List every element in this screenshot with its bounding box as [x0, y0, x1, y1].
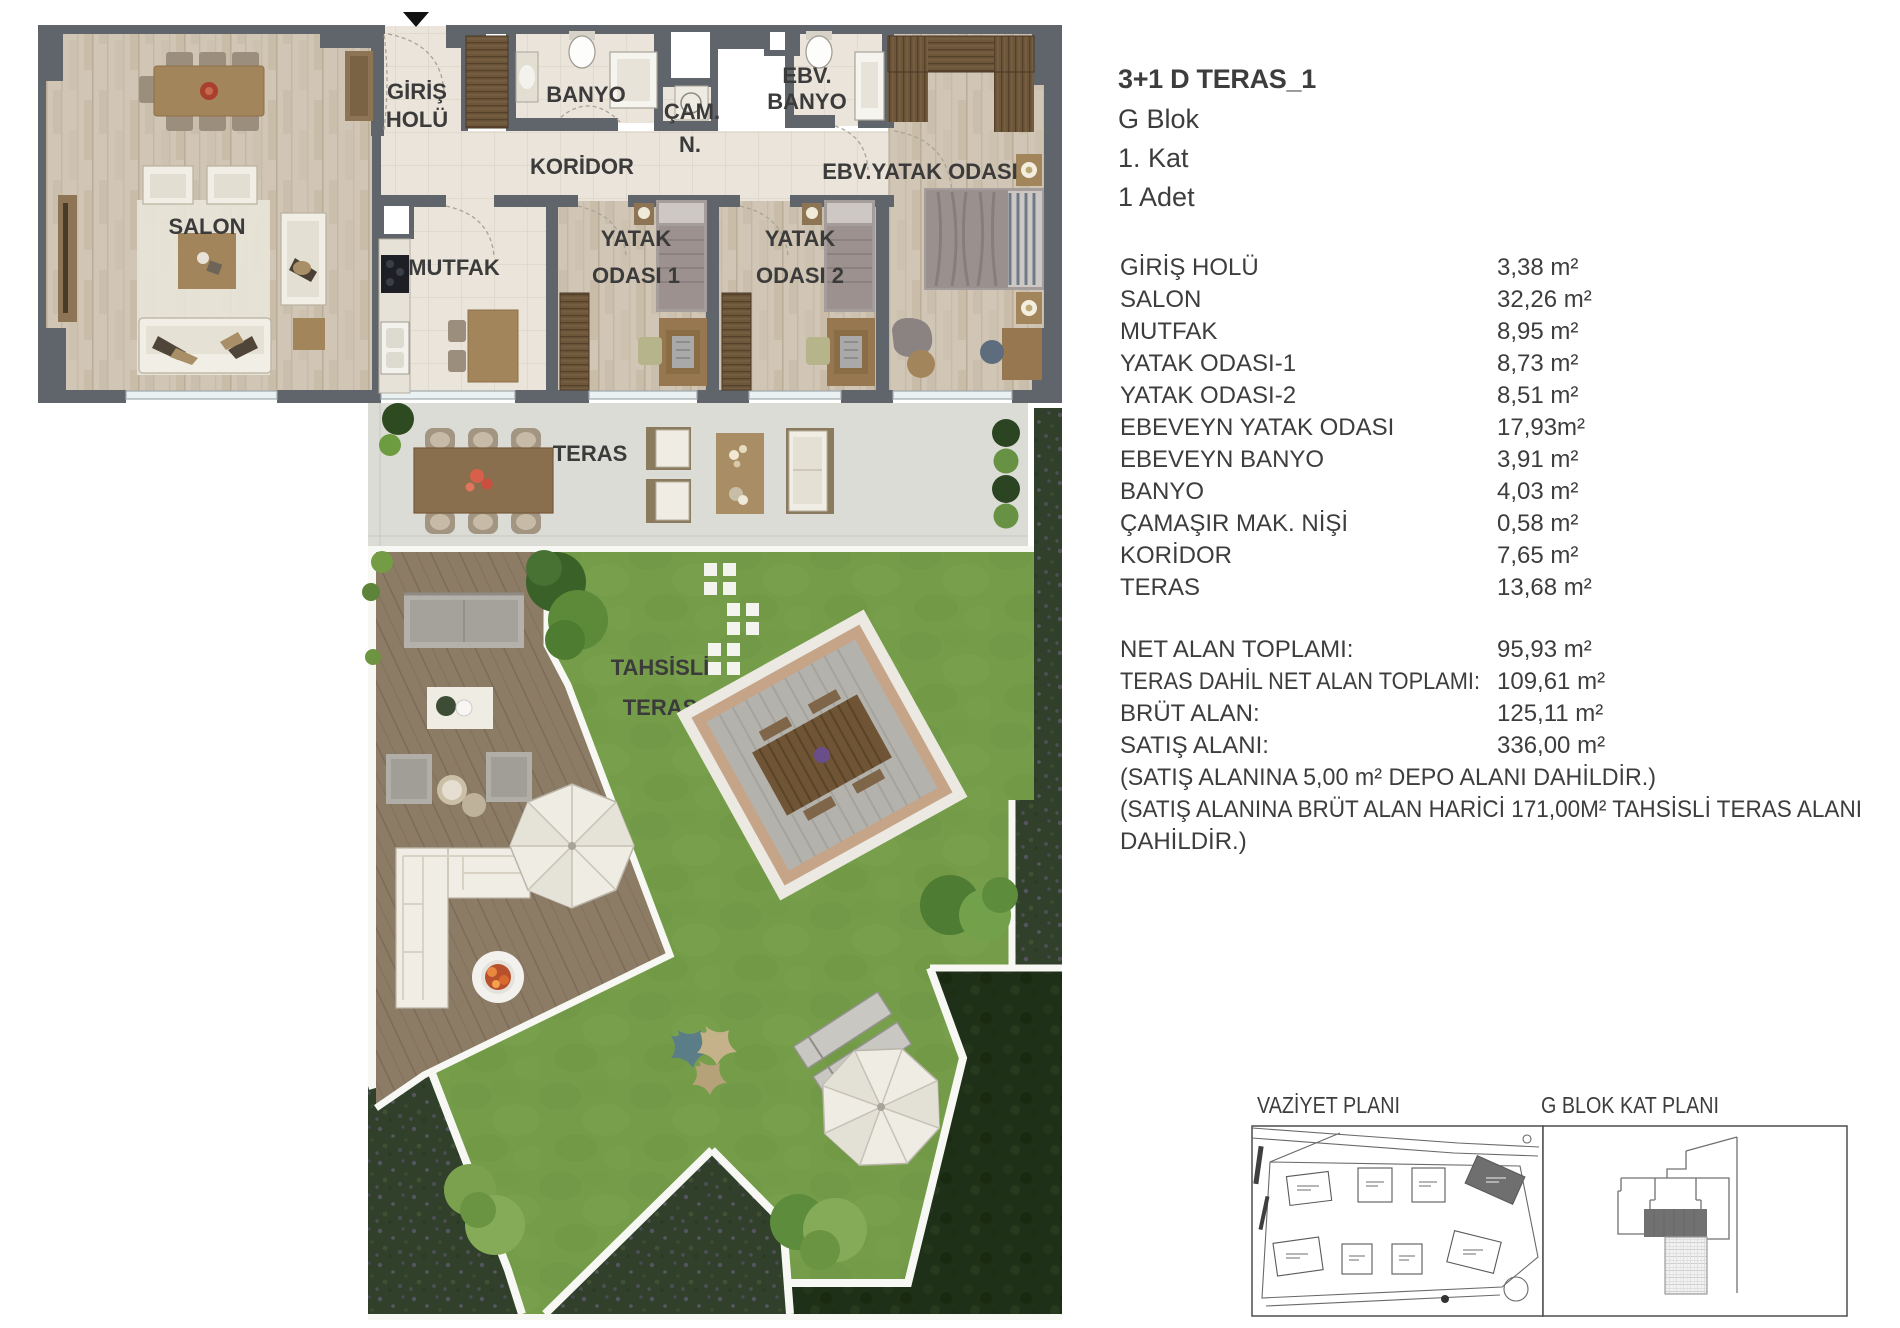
svg-text:32,26 m²: 32,26 m² [1497, 286, 1592, 313]
svg-text:(SATIŞ ALANINA BRÜT ALAN HARİC: (SATIŞ ALANINA BRÜT ALAN HARİCİ 171,00M²… [1120, 796, 1862, 823]
svg-text:TAHSİSLİ: TAHSİSLİ [611, 655, 710, 680]
svg-text:YATAK ODASI-1: YATAK ODASI-1 [1120, 350, 1296, 377]
svg-text:ÇAMAŞIR MAK. NİŞİ: ÇAMAŞIR MAK. NİŞİ [1120, 510, 1348, 537]
svg-text:7,65 m²: 7,65 m² [1497, 542, 1578, 569]
svg-text:ODASI 2: ODASI 2 [756, 263, 844, 288]
svg-text:95,93 m²: 95,93 m² [1497, 636, 1592, 663]
svg-text:TERAS: TERAS [553, 441, 628, 466]
svg-text:VAZİYET PLANI: VAZİYET PLANI [1257, 1092, 1400, 1118]
svg-text:125,11 m²: 125,11 m² [1497, 700, 1603, 727]
svg-text:EBEVEYN YATAK ODASI: EBEVEYN YATAK ODASI [1120, 414, 1394, 441]
svg-text:8,73 m²: 8,73 m² [1497, 350, 1578, 377]
svg-text:EBV.: EBV. [782, 63, 831, 88]
svg-text:KORİDOR: KORİDOR [1120, 542, 1232, 569]
svg-text:1. Kat: 1. Kat [1118, 143, 1189, 173]
svg-text:SALON: SALON [169, 214, 246, 239]
svg-text:SATIŞ ALANI:: SATIŞ ALANI: [1120, 732, 1269, 759]
svg-text:TERAS DAHİL NET ALAN TOPLAMI:: TERAS DAHİL NET ALAN TOPLAMI: [1120, 668, 1480, 695]
svg-text:HOLÜ: HOLÜ [386, 107, 448, 132]
svg-text:G Blok: G Blok [1118, 104, 1200, 134]
svg-text:YATAK: YATAK [765, 226, 836, 251]
svg-text:109,61 m²: 109,61 m² [1497, 668, 1605, 695]
svg-text:3,38 m²: 3,38 m² [1497, 254, 1578, 281]
svg-text:BANYO: BANYO [546, 82, 625, 107]
svg-text:BRÜT ALAN:: BRÜT ALAN: [1120, 700, 1260, 727]
svg-text:MUTFAK: MUTFAK [408, 255, 500, 280]
svg-text:SALON: SALON [1120, 286, 1201, 313]
svg-text:EBV.YATAK ODASI: EBV.YATAK ODASI [822, 159, 1018, 184]
svg-text:N.: N. [679, 132, 701, 157]
svg-text:TERAS: TERAS [1120, 574, 1200, 601]
svg-text:ODASI 1: ODASI 1 [592, 263, 680, 288]
svg-text:ÇAM.: ÇAM. [664, 99, 720, 124]
svg-text:3+1 D TERAS_1: 3+1 D TERAS_1 [1118, 64, 1316, 94]
svg-text:YATAK: YATAK [601, 226, 672, 251]
svg-text:NET ALAN TOPLAMI:: NET ALAN TOPLAMI: [1120, 636, 1353, 663]
svg-text:G BLOK KAT PLANI: G BLOK KAT PLANI [1541, 1092, 1719, 1118]
svg-text:GİRİŞ: GİRİŞ [387, 79, 447, 104]
svg-text:4,03 m²: 4,03 m² [1497, 478, 1578, 505]
svg-text:GİRİŞ HOLÜ: GİRİŞ HOLÜ [1120, 254, 1259, 281]
svg-text:BANYO: BANYO [767, 89, 846, 114]
svg-text:17,93m²: 17,93m² [1497, 414, 1585, 441]
svg-text:BANYO: BANYO [1120, 478, 1204, 505]
svg-text:0,58 m²: 0,58 m² [1497, 510, 1578, 537]
svg-text:13,68 m²: 13,68 m² [1497, 574, 1592, 601]
svg-text:8,95 m²: 8,95 m² [1497, 318, 1578, 345]
svg-text:YATAK ODASI-2: YATAK ODASI-2 [1120, 382, 1296, 409]
svg-text:1 Adet: 1 Adet [1118, 182, 1195, 212]
svg-text:3,91 m²: 3,91 m² [1497, 446, 1578, 473]
svg-text:(SATIŞ ALANINA 5,00 m² DEPO AL: (SATIŞ ALANINA 5,00 m² DEPO ALANI DAHİLD… [1120, 764, 1656, 791]
svg-text:336,00 m²: 336,00 m² [1497, 732, 1605, 759]
svg-text:EBEVEYN BANYO: EBEVEYN BANYO [1120, 446, 1324, 473]
svg-text:8,51 m²: 8,51 m² [1497, 382, 1578, 409]
svg-text:KORİDOR: KORİDOR [530, 154, 634, 179]
svg-text:DAHİLDİR.): DAHİLDİR.) [1120, 828, 1247, 855]
svg-text:MUTFAK: MUTFAK [1120, 318, 1217, 345]
